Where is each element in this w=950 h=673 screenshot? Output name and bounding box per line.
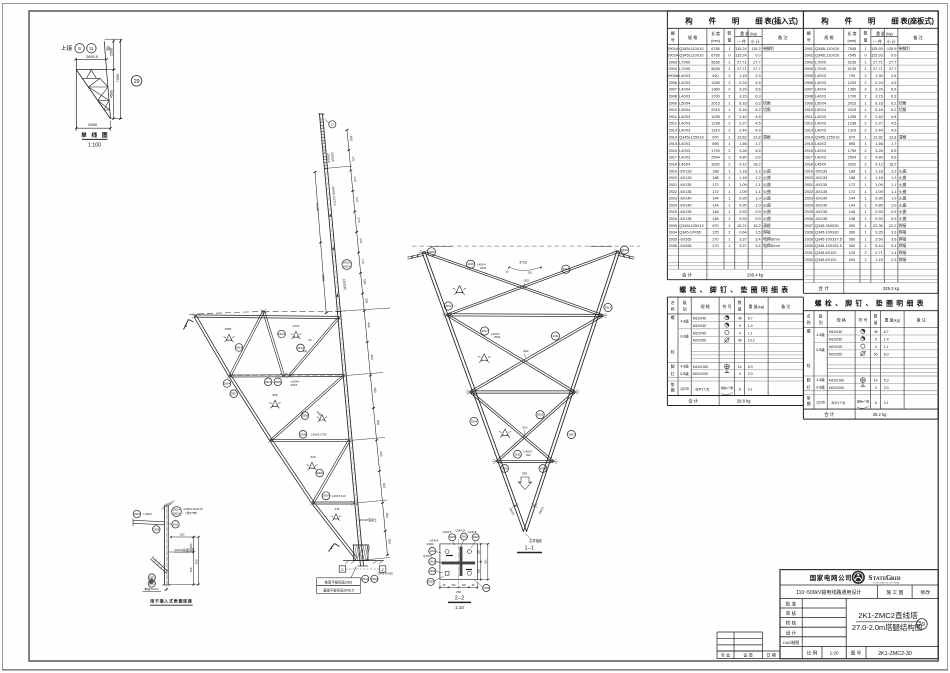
svg-text:360: 360 [849,244,855,248]
svg-text:2919: 2919 [669,169,677,173]
svg-text:M16X40: M16X40 [693,316,706,320]
svg-text:2: 2 [864,156,866,160]
svg-text:9: 9 [739,324,741,328]
svg-text:明: 明 [732,16,739,25]
svg-text:电焊Dmm: 电焊Dmm [763,236,780,241]
svg-text:0.95: 0.95 [739,203,746,207]
svg-text:1360: 1360 [711,88,719,92]
svg-text:2928: 2928 [804,231,812,235]
svg-text:数: 数 [874,314,878,319]
svg-text:合 计: 合 计 [824,411,835,418]
svg-text:垫: 垫 [671,382,675,387]
svg-text:27.71: 27.71 [873,67,883,71]
svg-text:Q235: Q235 [816,401,825,405]
svg-text:M20X200: M20X200 [693,372,708,376]
svg-text:合 计: 合 计 [818,285,829,292]
svg-text:2: 2 [728,88,730,92]
svg-text:250: 250 [456,590,461,594]
svg-text:1.4: 1.4 [748,324,753,328]
svg-text:1.2: 1.2 [755,169,760,173]
svg-text:-6X140: -6X140 [679,197,691,201]
svg-text:18.2: 18.2 [753,163,760,167]
svg-text:3.37: 3.37 [739,244,746,248]
svg-text:2909: 2909 [275,380,282,384]
svg-text:2929: 2929 [450,536,456,539]
svg-text:2917: 2917 [669,156,677,160]
svg-text:规 格: 规 格 [688,34,698,41]
svg-text:(mm): (mm) [711,39,721,43]
svg-text:细: 细 [755,16,763,25]
svg-text:2918: 2918 [804,163,812,167]
svg-text:1.09: 1.09 [875,183,882,187]
svg-text:2933: 2933 [371,577,378,581]
svg-text:3.4: 3.4 [755,244,760,248]
svg-text:400: 400 [382,483,387,489]
svg-text:2908: 2908 [302,414,309,418]
svg-text:1289: 1289 [711,81,719,85]
svg-text:550: 550 [363,279,368,285]
svg-text:小 计: 小 计 [751,39,760,44]
svg-text:2932: 2932 [804,258,812,262]
svg-text:-6X135: -6X135 [815,217,827,221]
svg-text:350: 350 [485,559,488,564]
svg-text:2.24: 2.24 [739,81,746,85]
svg-text:1.7: 1.7 [891,142,896,146]
svg-text:1: 1 [864,142,866,146]
svg-text:630: 630 [310,455,315,459]
svg-text:2930: 2930 [804,244,812,248]
svg-text:2905: 2905 [804,74,812,78]
svg-text:小 计: 小 计 [887,39,896,44]
svg-text:1:20: 1:20 [830,651,839,656]
svg-text:2: 2 [864,251,866,255]
svg-text:1.2: 1.2 [891,176,896,180]
svg-text:校 核: 校 核 [786,620,797,627]
svg-text:长 度: 长 度 [711,30,720,36]
svg-text:302: 302 [528,272,533,275]
svg-text:2901A: 2901A [343,260,351,264]
svg-text:29: 29 [919,622,925,628]
svg-text:2918: 2918 [669,163,677,167]
svg-text:295.4 kg: 295.4 kg [747,273,764,278]
svg-text:2905A: 2905A [667,74,678,78]
svg-text:-6X140: -6X140 [815,197,827,201]
svg-text:329.3 kg: 329.3 kg [883,286,900,291]
svg-text:172: 172 [712,183,718,187]
svg-text:1238: 1238 [848,122,856,126]
svg-text:27.0-2.0m塔腿结构图: 27.0-2.0m塔腿结构图 [852,623,922,632]
svg-text:栓: 栓 [671,349,675,354]
svg-text:规 格: 规 格 [824,34,834,41]
svg-text:级: 级 [683,300,687,305]
svg-text:115.2: 115.2 [751,47,760,51]
svg-text:L40X3: L40X3 [815,142,826,146]
svg-text:5135: 5135 [848,67,856,71]
svg-text:火曲: 火曲 [899,196,907,201]
svg-text:188: 188 [712,169,718,173]
svg-text:11: 11 [89,46,94,51]
svg-text:2980: 2980 [88,122,98,127]
svg-text:0.1: 0.1 [748,388,753,392]
svg-text:1.1: 1.1 [755,183,760,187]
svg-text:2.44: 2.44 [875,129,882,133]
svg-text:0.0: 0.0 [755,54,760,58]
svg-text:-6X133: -6X133 [679,169,691,173]
svg-text:1759: 1759 [711,149,719,153]
svg-text:火曲: 火曲 [899,189,907,194]
svg-text:M20X55: M20X55 [829,352,842,356]
svg-text:2916: 2916 [669,149,677,153]
svg-text:Q345-10X65: Q345-10X65 [378,572,394,576]
svg-text:2#C25混凝土: 2#C25混凝土 [360,517,377,522]
svg-text:切角: 切角 [763,100,771,105]
svg-text:火曲: 火曲 [763,216,771,221]
svg-text:188: 188 [712,176,718,180]
svg-text:1: 1 [728,190,730,194]
svg-text:2919: 2919 [621,248,628,252]
svg-text:3332: 3332 [480,266,487,270]
svg-text:L70X5: L70X5 [815,60,826,64]
svg-text:1: 1 [728,197,730,201]
svg-text:400: 400 [370,354,375,360]
svg-text:L40X3 1700: L40X3 1700 [311,432,327,436]
svg-text:焊接: 焊接 [899,223,907,228]
svg-text:4: 4 [739,331,741,335]
svg-text:2913: 2913 [804,129,812,133]
svg-text:2: 2 [728,231,730,235]
svg-text:L50X4: L50X4 [679,101,690,105]
svg-text:螺栓、脚钉、垫圈明细表: 螺栓、脚钉、垫圈明细表 [815,299,927,308]
svg-text:935: 935 [522,472,527,476]
svg-text:-3(Φ17.5): -3(Φ17.5) [830,401,845,405]
svg-text:1.1: 1.1 [884,345,889,349]
svg-text:14: 14 [874,378,878,382]
svg-text:1238: 1238 [711,122,719,126]
svg-text:2915: 2915 [669,142,677,146]
svg-text:1209: 1209 [848,81,856,85]
svg-text:2904: 2904 [224,382,231,386]
svg-text:2: 2 [728,163,730,167]
svg-text:量: 量 [738,307,742,312]
svg-text:5635: 5635 [711,67,719,71]
svg-text:量: 量 [727,37,731,43]
svg-text:2: 2 [864,163,866,167]
svg-text:1.1: 1.1 [755,190,760,194]
svg-text:2927: 2927 [804,224,812,228]
svg-text:27.71: 27.71 [737,60,747,64]
svg-text:6.8级: 6.8级 [680,333,689,338]
svg-text:570: 570 [353,176,358,182]
svg-text:8020: 8020 [321,274,325,281]
svg-text:360: 360 [849,237,855,241]
svg-text:-6X135: -6X135 [815,190,827,194]
svg-text:600: 600 [379,451,384,457]
svg-text:1.7: 1.7 [755,142,760,146]
svg-text:2911: 2911 [552,334,558,338]
svg-text:2907: 2907 [804,88,812,92]
svg-text:2910: 2910 [669,108,677,112]
svg-text:2913: 2913 [669,129,677,133]
svg-text:146: 146 [849,217,855,221]
svg-text:9.6: 9.6 [755,156,760,160]
svg-text:6.5: 6.5 [755,149,760,153]
svg-text:合 计: 合 计 [682,272,693,279]
svg-text:144: 144 [712,197,718,201]
svg-text:焊接: 焊接 [899,257,907,262]
svg-text:1759: 1759 [848,149,856,153]
svg-text:上接: 上接 [61,44,73,52]
svg-text:1295: 1295 [848,115,856,119]
svg-text:550: 550 [349,136,354,142]
svg-text:火曲: 火曲 [763,168,771,173]
svg-text:2913: 2913 [429,559,435,563]
svg-text:L40X4: L40X4 [679,88,690,92]
svg-text:L70X5: L70X5 [815,67,826,71]
svg-text:2: 2 [864,149,866,153]
svg-text:27.7: 27.7 [889,67,896,71]
svg-text:2911: 2911 [173,522,179,526]
svg-text:本段50mm: 本段50mm [144,586,159,591]
svg-text:1: 1 [864,197,866,201]
svg-text:施 工 图: 施 工 图 [886,589,903,596]
svg-text:3.29: 3.29 [875,88,882,92]
svg-text:110~500kV输电线路通用设计: 110~500kV输电线路通用设计 [796,589,861,596]
svg-text:13.2: 13.2 [748,339,755,343]
svg-text:2918: 2918 [429,569,435,573]
svg-text:1--1: 1--1 [525,546,535,552]
svg-text:2914: 2914 [669,135,677,139]
svg-text:2911: 2911 [430,549,436,553]
svg-text:2934: 2934 [134,512,140,516]
svg-text:M16X40: M16X40 [829,330,842,334]
svg-text:量: 量 [874,320,878,325]
svg-text:2904: 2904 [471,420,478,424]
svg-text:明: 明 [868,16,875,25]
svg-text:270: 270 [712,244,718,248]
svg-text:3.4: 3.4 [755,237,760,241]
svg-text:3.6: 3.6 [891,237,896,241]
svg-text:2.3: 2.3 [891,258,896,262]
svg-text:14: 14 [738,365,742,369]
svg-text:2917: 2917 [804,156,812,160]
svg-text:L40X4: L40X4 [144,512,153,516]
svg-text:2: 2 [728,122,730,126]
svg-text:2926: 2926 [669,217,677,221]
svg-text:3332: 3332 [711,163,719,167]
svg-text:520: 520 [387,539,392,545]
svg-text:46: 46 [738,339,742,343]
svg-text:0: 0 [728,54,730,58]
svg-text:1.1: 1.1 [748,331,753,335]
svg-text:圈: 圈 [671,388,675,393]
svg-text:15.2: 15.2 [753,224,760,228]
svg-text:2K1-ZMC2-30: 2K1-ZMC2-30 [878,651,912,657]
svg-text:1.0: 1.0 [755,203,760,207]
svg-text:7545: 7545 [848,47,856,51]
svg-text:2965: 2965 [225,327,232,331]
svg-text:4.9: 4.9 [891,129,896,133]
svg-text:2: 2 [864,129,866,133]
svg-text:备 注: 备 注 [781,303,790,309]
svg-text:2: 2 [864,122,866,126]
svg-text:Q345L110X10: Q345L110X10 [679,47,703,51]
svg-text:1270: 1270 [293,324,300,328]
svg-text:1.66: 1.66 [875,142,882,146]
svg-text:600: 600 [376,420,381,426]
svg-text:2921: 2921 [804,183,812,187]
svg-text:2904: 2904 [804,67,812,71]
svg-text:9: 9 [875,337,877,341]
svg-text:-6X135: -6X135 [679,217,691,221]
svg-text:1: 1 [728,237,730,241]
svg-text:2.40: 2.40 [875,115,882,119]
svg-text:2903: 2903 [669,60,677,64]
svg-text:Q345L125X10: Q345L125X10 [679,135,704,139]
svg-text:2909: 2909 [669,101,677,105]
svg-text:L40X3: L40X3 [815,156,826,160]
svg-text:6.3: 6.3 [755,95,760,99]
svg-text:100: 100 [462,584,467,587]
svg-text:2907: 2907 [669,88,677,92]
svg-text:设 计: 设 计 [786,629,797,636]
svg-text:3: 3 [875,386,877,390]
svg-text:200: 200 [849,258,855,262]
svg-text:国家电网公司: 国家电网公司 [810,573,853,582]
svg-text:清根: 清根 [763,134,771,139]
svg-text:1: 1 [864,183,866,187]
svg-text:360: 360 [849,231,855,235]
svg-text:6.5: 6.5 [891,149,896,153]
svg-text:M20X200: M20X200 [829,386,844,390]
svg-text:3332: 3332 [848,163,856,167]
svg-text:2903: 2903 [568,433,575,437]
svg-text:5.4: 5.4 [891,244,896,248]
svg-text:L40X3: L40X3 [679,149,690,153]
svg-text:编: 编 [807,30,811,36]
svg-text:2912: 2912 [804,122,812,126]
svg-text:火曲: 火曲 [899,202,907,207]
svg-text:0.95: 0.95 [739,197,746,201]
svg-text:Q345-6X120: Q345-6X120 [815,258,837,262]
svg-text:2.40: 2.40 [739,115,746,119]
svg-text:L40X3: L40X3 [815,81,826,85]
svg-text:170: 170 [351,156,356,162]
svg-text:5.3: 5.3 [884,378,889,382]
svg-text:2914: 2914 [804,135,812,139]
svg-text:2933: 2933 [669,224,677,228]
svg-text:火曲: 火曲 [899,182,907,187]
svg-text:2: 2 [728,81,730,85]
svg-text:-6X133: -6X133 [815,176,827,180]
svg-text:件: 件 [709,16,717,25]
svg-text:5135: 5135 [848,60,856,64]
svg-text:2903: 2903 [804,60,812,64]
svg-text:规格ø个数: 规格ø个数 [857,400,870,404]
svg-text:27.7: 27.7 [889,60,896,64]
svg-text:M16X180: M16X180 [829,378,844,382]
svg-text:Q345-8: Q345-8 [430,539,439,543]
svg-text:46: 46 [874,330,878,334]
svg-text:2934: 2934 [669,231,677,235]
svg-text:11: 11 [331,123,334,127]
svg-text:-6X135: -6X135 [815,183,827,187]
svg-text:2908: 2908 [804,95,812,99]
svg-text:垫: 垫 [807,396,811,401]
svg-text:2908: 2908 [669,95,677,99]
svg-text:2931: 2931 [804,251,812,255]
svg-text:1.30: 1.30 [875,74,882,78]
svg-text:1: 1 [864,60,866,64]
svg-text:4.9: 4.9 [755,129,760,133]
svg-text:2916: 2916 [563,267,570,271]
svg-text:2594: 2594 [848,156,856,160]
svg-text:Q345-26X530: Q345-26X530 [815,224,839,228]
svg-text:2: 2 [728,115,730,119]
svg-text:29.8 kg: 29.8 kg [737,399,751,404]
svg-text:2901A基础顶面: 2901A基础顶面 [175,547,195,552]
svg-text:9.3: 9.3 [891,231,896,235]
svg-text:L40X3: L40X3 [679,142,690,146]
svg-text:146: 146 [712,210,718,214]
svg-text:125: 125 [712,231,718,235]
svg-text:4.80: 4.80 [875,156,882,160]
svg-text:3.29: 3.29 [739,88,746,92]
svg-text:1.18: 1.18 [875,176,882,180]
svg-text:0.9: 0.9 [891,210,896,214]
svg-text:1.18: 1.18 [739,169,746,173]
svg-text:4.5: 4.5 [891,81,896,85]
svg-text:-6X135: -6X135 [815,210,827,214]
svg-text:Q235: Q235 [680,387,689,391]
svg-text:Q345-10X327.5: Q345-10X327.5 [815,237,842,241]
svg-text:188: 188 [849,176,855,180]
svg-text:895: 895 [849,142,855,146]
svg-text:2906: 2906 [669,81,677,85]
svg-text:0.9: 0.9 [755,217,760,221]
svg-text:-302: -302 [522,349,528,353]
svg-text:2935: 2935 [428,580,434,584]
svg-text:4.8级: 4.8级 [816,377,825,382]
svg-text:规 格: 规 格 [837,317,846,323]
svg-text:115.24: 115.24 [735,47,746,51]
svg-text:6.16: 6.16 [875,101,882,105]
svg-text:1.5: 1.5 [755,231,760,235]
svg-text:0.95: 0.95 [875,197,882,201]
svg-text:2913: 2913 [445,304,452,308]
svg-text:2904: 2904 [669,67,677,71]
svg-text:570: 570 [357,217,362,223]
svg-text:1.2: 1.2 [891,169,896,173]
svg-text:M16X50: M16X50 [829,337,842,341]
svg-text:2: 2 [864,74,866,78]
svg-text:270: 270 [712,237,718,241]
svg-text:46: 46 [738,316,742,320]
svg-text:2.24: 2.24 [875,81,882,85]
svg-text:6.8级: 6.8级 [816,385,825,390]
svg-text:L50X4: L50X4 [679,108,690,112]
svg-text:2: 2 [728,95,730,99]
svg-text:2916: 2916 [236,346,243,350]
svg-text:用于插入式角钢连接: 用于插入式角钢连接 [149,598,193,604]
svg-text:2925: 2925 [804,210,812,214]
svg-text:1: 1 [728,244,730,248]
svg-text:1.0: 1.0 [755,197,760,201]
svg-text:0.71: 0.71 [875,251,882,255]
svg-text:火曲: 火曲 [763,196,771,201]
svg-text:L45X4: L45X4 [679,163,690,167]
svg-text:6.2: 6.2 [755,101,760,105]
svg-text:22.35: 22.35 [873,224,883,228]
